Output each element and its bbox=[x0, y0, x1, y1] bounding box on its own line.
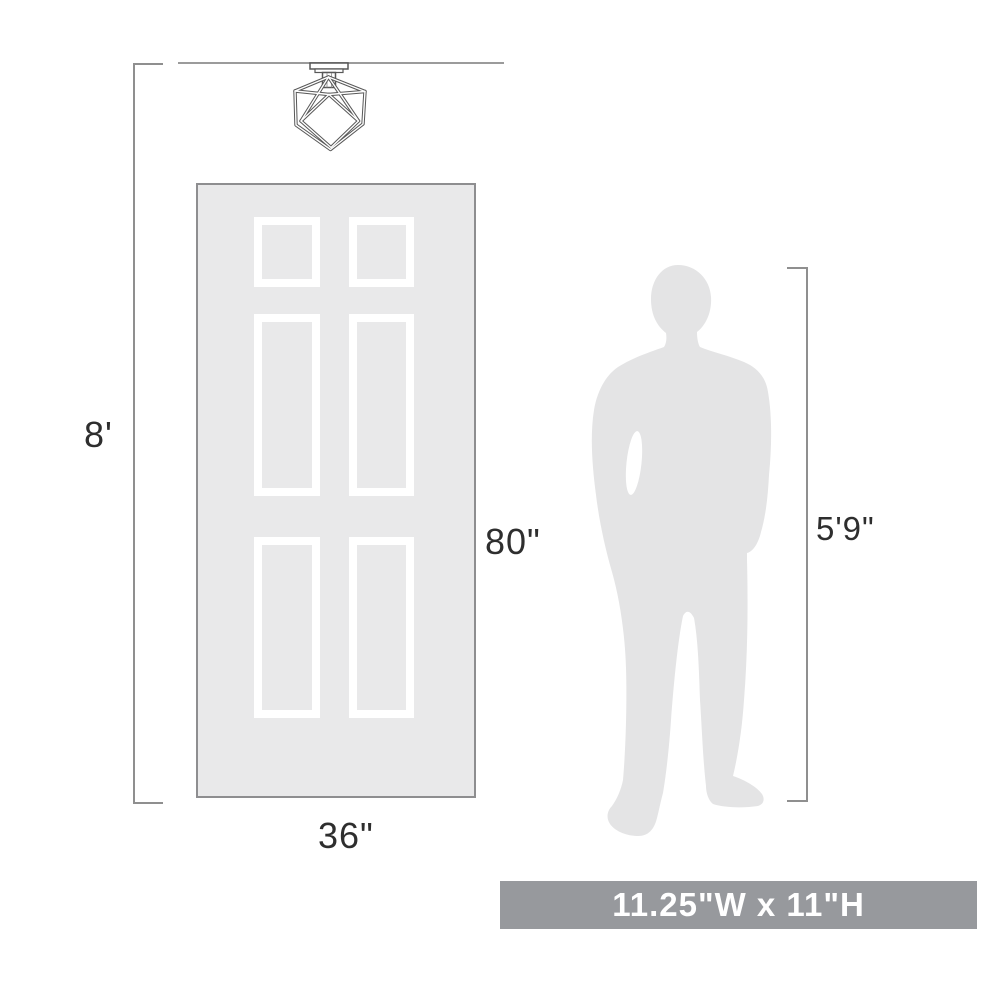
ceiling-height-dimension-line bbox=[133, 63, 163, 804]
door-width-label: 36" bbox=[318, 815, 374, 857]
door-panel bbox=[349, 314, 414, 496]
person-height-dimension-line bbox=[787, 267, 808, 802]
person-silhouette-icon bbox=[580, 260, 780, 845]
ceiling-height-label: 8' bbox=[84, 414, 113, 456]
door-illustration bbox=[196, 183, 476, 798]
door-panel bbox=[254, 537, 320, 718]
cube-cage-light-fixture-icon bbox=[280, 58, 375, 158]
door-panel bbox=[254, 217, 320, 287]
fixture-dimensions-label: 11.25"W x 11"H bbox=[612, 886, 865, 924]
door-panel bbox=[349, 217, 414, 287]
door-panel bbox=[254, 314, 320, 496]
person-height-label: 5'9" bbox=[816, 510, 875, 548]
door-panel bbox=[349, 537, 414, 718]
fixture-dimensions-banner: 11.25"W x 11"H bbox=[500, 881, 977, 929]
door-height-label: 80" bbox=[485, 521, 541, 563]
product-dimension-diagram: 8' 80" 36" 5'9" bbox=[0, 0, 1000, 1000]
